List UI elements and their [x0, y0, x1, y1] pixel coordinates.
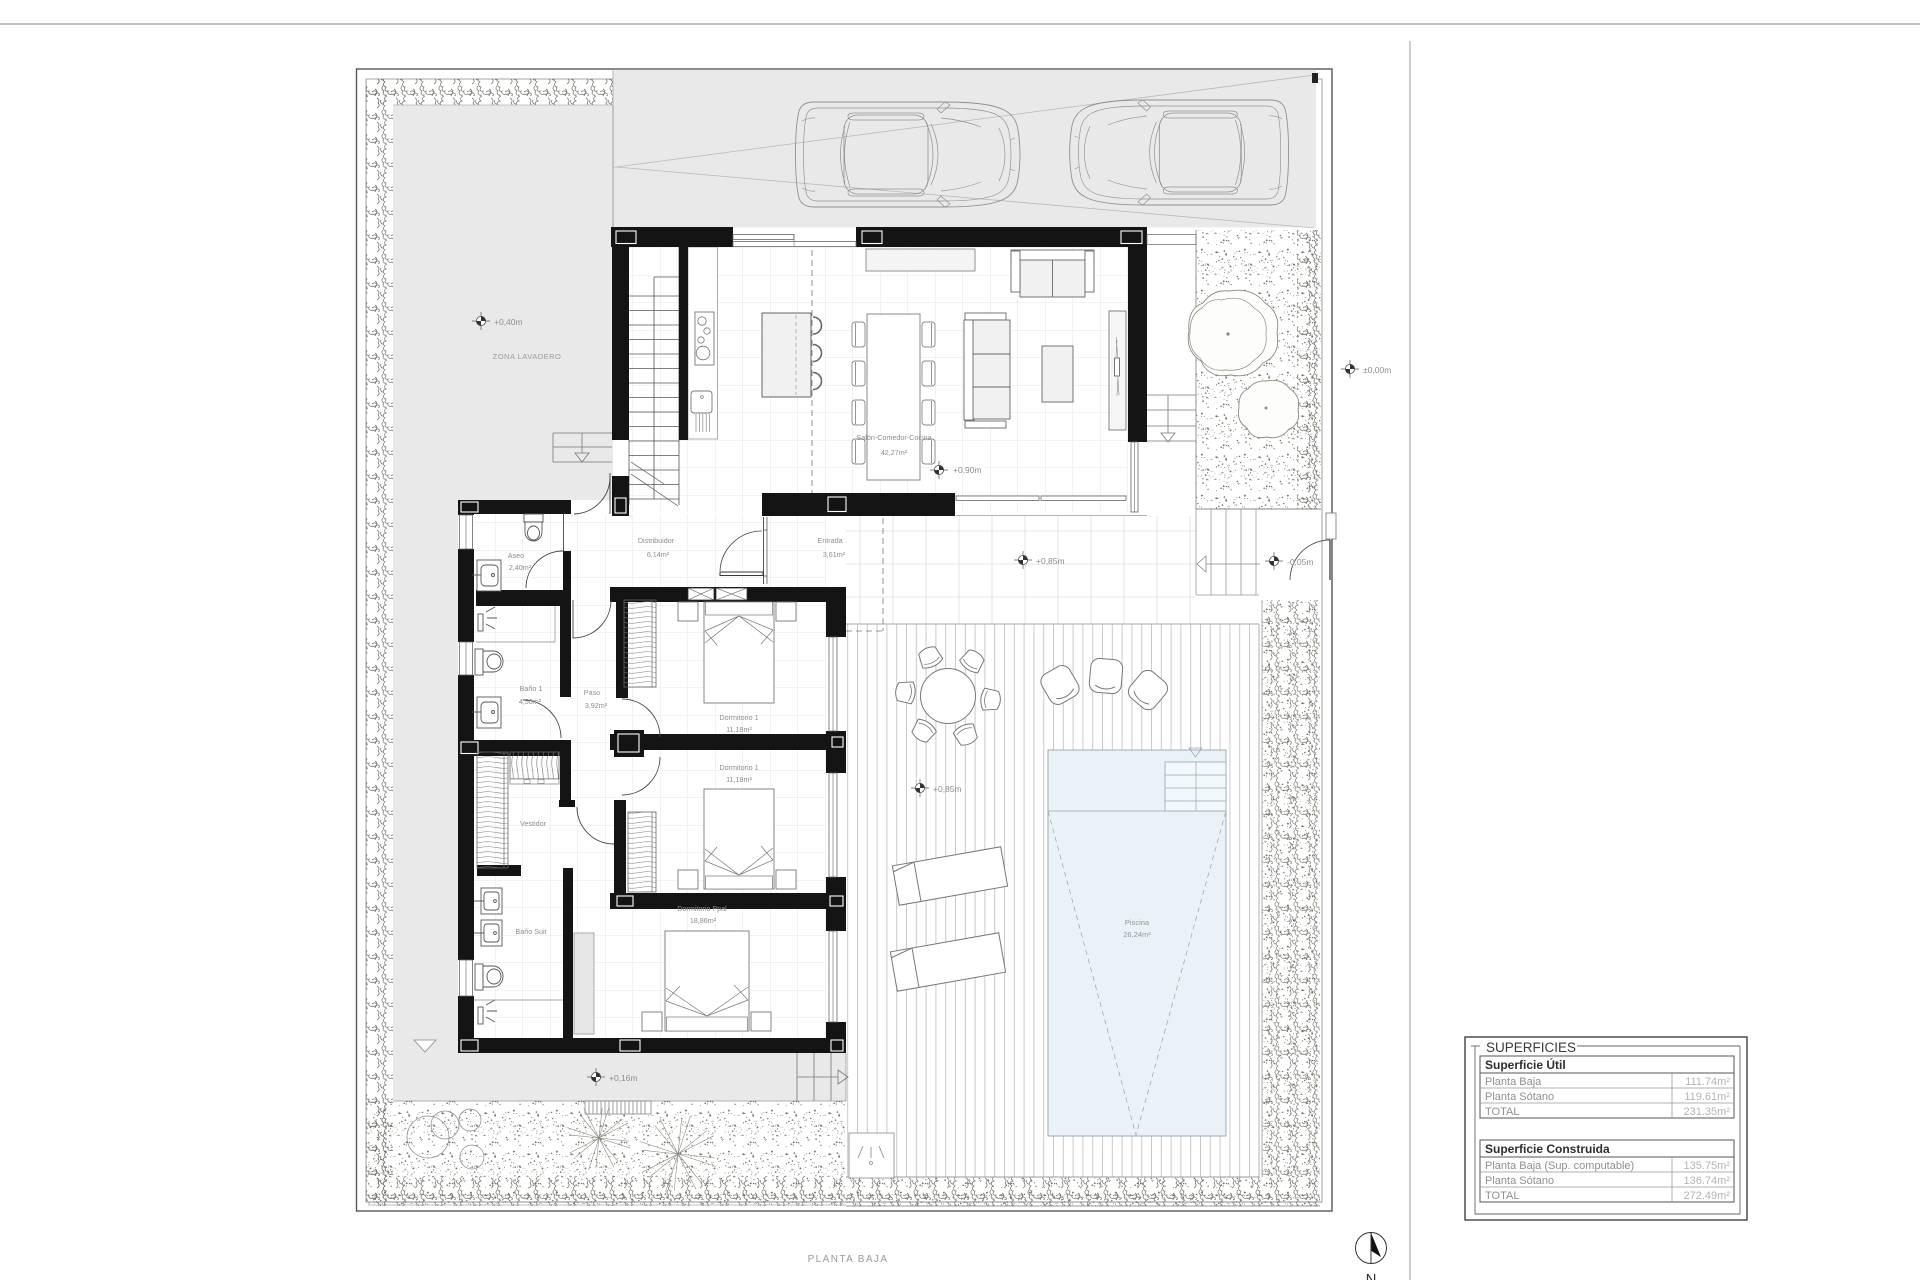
- svg-text:135.75m²: 135.75m²: [1684, 1160, 1731, 1172]
- svg-text:Superficie Útil: Superficie Útil: [1485, 1057, 1566, 1072]
- svg-text:+0,90m: +0,90m: [953, 465, 982, 475]
- svg-text:Aseo: Aseo: [508, 551, 524, 560]
- svg-text:Vestidor: Vestidor: [520, 819, 547, 828]
- svg-text:Superficie Construida: Superficie Construida: [1485, 1142, 1610, 1156]
- svg-text:6,14m²: 6,14m²: [647, 550, 670, 559]
- svg-text:+0,16m: +0,16m: [609, 1073, 638, 1083]
- svg-text:Paso: Paso: [584, 688, 600, 697]
- svg-text:Planta Baja (Sup. computable): Planta Baja (Sup. computable): [1485, 1160, 1634, 1172]
- svg-text:26,24m²: 26,24m²: [1123, 930, 1151, 939]
- svg-text:272.49m²: 272.49m²: [1684, 1190, 1731, 1202]
- svg-text:231.35m²: 231.35m²: [1684, 1106, 1731, 1118]
- svg-text:Dormitorio 1: Dormitorio 1: [719, 713, 758, 722]
- svg-text:Planta Sótano: Planta Sótano: [1485, 1091, 1554, 1103]
- svg-text:N: N: [1366, 1271, 1377, 1280]
- svg-text:18,86m²: 18,86m²: [690, 916, 717, 925]
- svg-text:Salón-Comedor-Cocina: Salón-Comedor-Cocina: [856, 433, 931, 442]
- svg-text:PLANTA BAJA: PLANTA BAJA: [808, 1254, 889, 1265]
- svg-text:-0,05m: -0,05m: [1287, 557, 1313, 567]
- svg-text:11,18m²: 11,18m²: [726, 775, 752, 784]
- svg-text:Baño Suit: Baño Suit: [515, 927, 546, 936]
- svg-text:4,50m²: 4,50m²: [519, 697, 542, 706]
- svg-text:Planta Baja: Planta Baja: [1485, 1076, 1542, 1088]
- svg-text:Entrada: Entrada: [817, 536, 842, 545]
- svg-text:Distribuidor: Distribuidor: [638, 536, 675, 545]
- svg-text:11,18m²: 11,18m²: [726, 725, 752, 734]
- svg-text:+0,85m: +0,85m: [933, 784, 962, 794]
- svg-text:Dormitorio 1: Dormitorio 1: [719, 763, 758, 772]
- svg-text:SUPERFICIES: SUPERFICIES: [1486, 1040, 1576, 1055]
- svg-text:TOTAL: TOTAL: [1485, 1190, 1519, 1202]
- svg-text:2,40m²: 2,40m²: [509, 563, 532, 572]
- svg-text:111.74m²: 111.74m²: [1685, 1076, 1730, 1088]
- svg-text:3,61m²: 3,61m²: [823, 550, 846, 559]
- svg-text:+0,85m: +0,85m: [1036, 556, 1065, 566]
- svg-text:±0,00m: ±0,00m: [1363, 365, 1391, 375]
- svg-text:42,27m²: 42,27m²: [881, 448, 908, 457]
- svg-text:+0,40m: +0,40m: [494, 317, 523, 327]
- svg-text:119.61m²: 119.61m²: [1684, 1091, 1730, 1103]
- svg-text:TOTAL: TOTAL: [1485, 1106, 1519, 1118]
- svg-text:Baño 1: Baño 1: [520, 684, 543, 693]
- svg-text:ZONA LAVADERO: ZONA LAVADERO: [493, 352, 562, 361]
- svg-text:Planta Sótano: Planta Sótano: [1485, 1175, 1554, 1187]
- svg-text:136.74m²: 136.74m²: [1684, 1175, 1731, 1187]
- svg-text:Piscina: Piscina: [1125, 918, 1150, 927]
- svg-text:Dormitorio Ppal: Dormitorio Ppal: [677, 904, 727, 913]
- svg-text:3,92m²: 3,92m²: [585, 701, 608, 710]
